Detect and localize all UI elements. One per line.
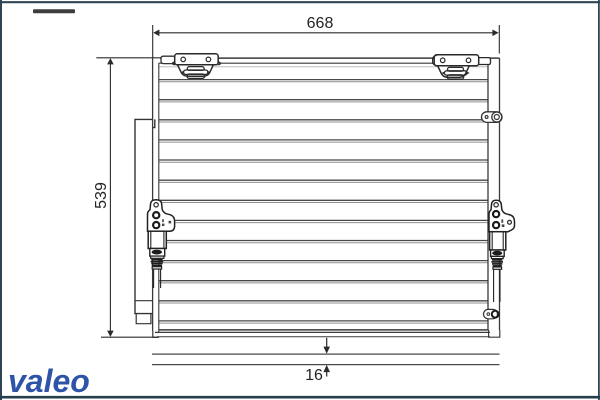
- svg-text:539: 539: [93, 182, 110, 209]
- svg-text:16: 16: [305, 367, 323, 384]
- svg-text:668: 668: [307, 15, 334, 32]
- svg-text:valeo: valeo: [8, 363, 90, 399]
